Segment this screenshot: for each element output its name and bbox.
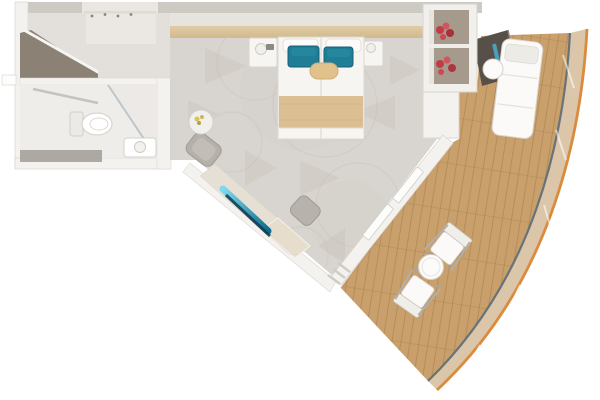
left-wall-notch <box>2 75 16 85</box>
entry-door-opening <box>82 2 158 13</box>
toilet <box>70 112 112 136</box>
bathroom-right-wall <box>157 78 171 169</box>
display-shelf <box>423 4 477 92</box>
entry-mat <box>86 14 156 44</box>
vanity-sink <box>124 138 156 157</box>
bathroom-top-wall <box>20 78 170 85</box>
wardrobe-block <box>423 87 459 138</box>
lounger-pillow <box>504 43 539 64</box>
lamp-left <box>256 44 267 55</box>
shelf-divider <box>429 44 469 48</box>
teal-pillow-left-hi <box>291 48 316 56</box>
lounger-side-table <box>483 59 503 79</box>
entry-corridor <box>20 13 170 85</box>
phone <box>266 44 274 50</box>
head-wall-face <box>170 13 427 26</box>
bed-runner <box>279 96 363 128</box>
bathroom-gray-strip <box>20 150 102 162</box>
floor-plan-svg <box>0 0 600 400</box>
lamp-right <box>367 44 376 53</box>
side-table <box>189 110 213 134</box>
accent-bolster <box>310 63 338 79</box>
floor-plan-image <box>0 0 600 400</box>
headboard-band <box>170 26 427 38</box>
teal-pillow-right-hi <box>327 49 350 57</box>
bathroom <box>20 78 171 169</box>
